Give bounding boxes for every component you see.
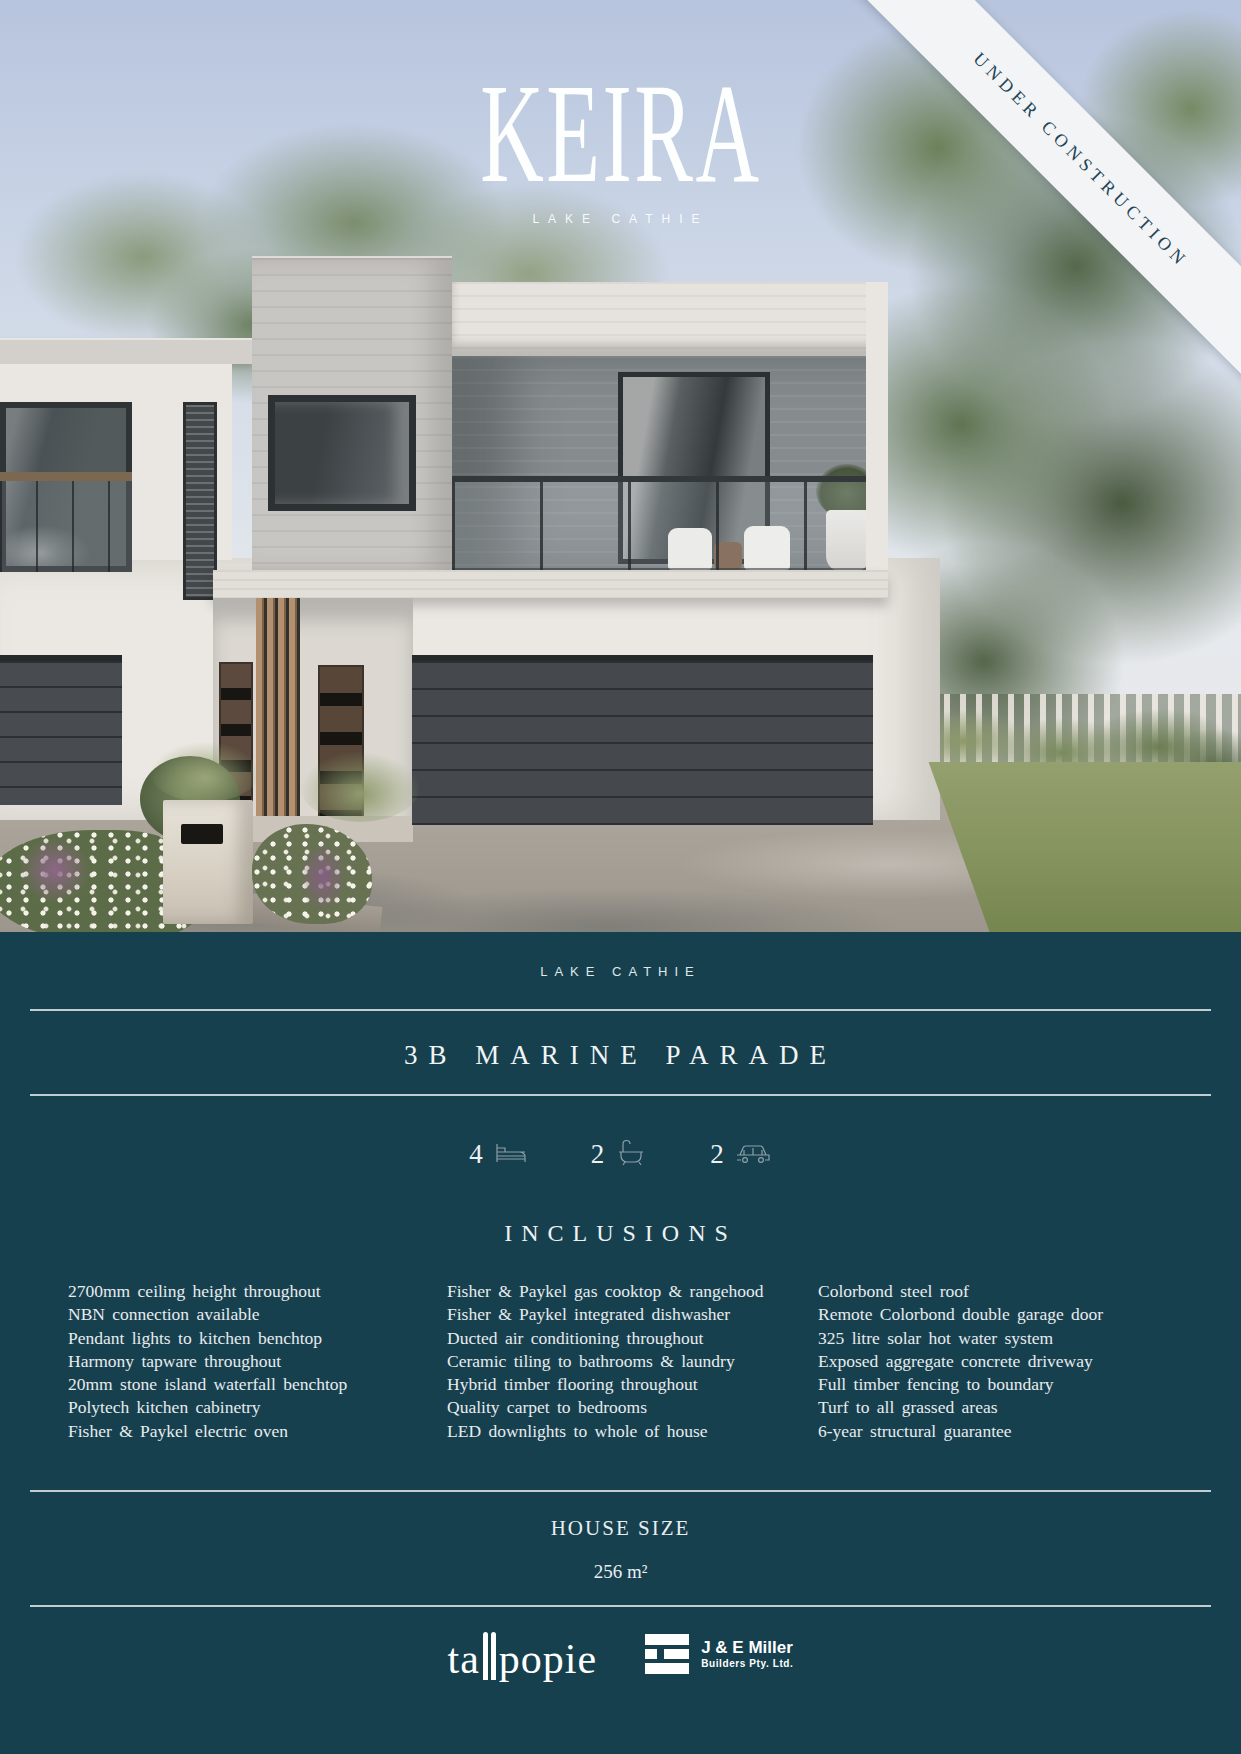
- inclusion-item: Hybrid timber flooring throughout: [447, 1373, 792, 1396]
- bath-icon: [614, 1138, 648, 1170]
- balcony-end-blade: [866, 282, 888, 572]
- property-title: KEIRA: [0, 62, 1241, 204]
- divider: [30, 1009, 1211, 1011]
- divider: [30, 1094, 1211, 1096]
- divider: [30, 1605, 1211, 1607]
- builder-name: J & E Miller: [701, 1639, 793, 1658]
- tallpopie-bar: [491, 1632, 496, 1680]
- inclusion-item: Remote Colorbond double garage door: [818, 1303, 1188, 1326]
- house-size-heading: HOUSE SIZE: [0, 1516, 1241, 1541]
- right-garage-door: [412, 655, 873, 825]
- inclusions-column-1: 2700mm ceiling height throughout NBN con…: [68, 1280, 398, 1443]
- house-size-value: 256 m²: [0, 1561, 1241, 1583]
- inclusion-item: 2700mm ceiling height throughout: [68, 1280, 398, 1303]
- address-heading: 3B MARINE PARADE: [0, 1040, 1241, 1071]
- inclusion-item: Ceramic tiling to bathrooms & laundry: [447, 1350, 792, 1373]
- inclusion-item: LED downlights to whole of house: [447, 1420, 792, 1443]
- left-garage-door: [0, 655, 122, 805]
- inclusion-item: Colorbond steel roof: [818, 1280, 1188, 1303]
- inclusion-item: Harmony tapware throughout: [68, 1350, 398, 1373]
- balcony-glass-railing: [452, 476, 888, 572]
- hero-render: UNDER CONSTRUCTION KEIRA LAKE CATHIE: [0, 0, 1241, 932]
- info-section: LAKE CATHIE 3B MARINE PARADE 4 2: [0, 932, 1241, 1754]
- inclusions-columns: 2700mm ceiling height throughout NBN con…: [0, 1280, 1241, 1450]
- left-balcony-railing: [0, 472, 132, 572]
- inclusion-item: Exposed aggregate concrete driveway: [818, 1350, 1188, 1373]
- first-floor-slab: [213, 570, 888, 598]
- letterbox-slot: [181, 824, 223, 844]
- divider: [30, 1490, 1211, 1492]
- inclusion-item: NBN connection available: [68, 1303, 398, 1326]
- inclusion-item: Polytech kitchen cabinetry: [68, 1396, 398, 1419]
- garage-count: 2: [710, 1139, 724, 1170]
- bedroom-count: 4: [469, 1139, 483, 1170]
- letterbox: [163, 800, 253, 924]
- tallpopie-bar: [483, 1632, 488, 1680]
- builder-logo: J & E Miller Builders Pty. Ltd.: [645, 1634, 793, 1674]
- center-window: [268, 395, 416, 511]
- property-stats: 4 2 2: [0, 1138, 1241, 1170]
- inclusions-column-2: Fisher & Paykel gas cooktop & rangehood …: [447, 1280, 792, 1443]
- inclusion-item: Fisher & Paykel electric oven: [68, 1420, 398, 1443]
- grass-tuft: [300, 752, 420, 822]
- tallpopie-logo-suffix: popie: [499, 1638, 597, 1680]
- stat-bedrooms: 4: [469, 1138, 529, 1170]
- timber-batten-screen: [256, 598, 300, 820]
- inclusion-item: 6-year structural guarantee: [818, 1420, 1188, 1443]
- inclusion-item: Ducted air conditioning throughout: [447, 1327, 792, 1350]
- inclusions-column-3: Colorbond steel roof Remote Colorbond do…: [818, 1280, 1188, 1443]
- inclusion-item: 325 litre solar hot water system: [818, 1327, 1188, 1350]
- footer-logos: ta popie J & E Miller Builders Pty. Ltd.: [0, 1632, 1241, 1680]
- louver-panel: [183, 402, 217, 600]
- right-unit-fascia: [452, 282, 888, 356]
- builder-logo-icon: [645, 1634, 689, 1674]
- builder-subtitle: Builders Pty. Ltd.: [701, 1658, 793, 1669]
- builder-logo-text: J & E Miller Builders Pty. Ltd.: [701, 1639, 793, 1669]
- purple-flowers: [20, 838, 90, 902]
- stat-bathrooms: 2: [591, 1138, 649, 1170]
- inclusion-item: Pendant lights to kitchen benchtop: [68, 1327, 398, 1350]
- location-label: LAKE CATHIE: [0, 964, 1241, 979]
- inclusion-item: Turf to all grassed areas: [818, 1396, 1188, 1419]
- bathroom-count: 2: [591, 1139, 605, 1170]
- grass-tuft: [150, 742, 260, 802]
- car-icon: [734, 1138, 772, 1170]
- inclusion-item: Quality carpet to bedrooms: [447, 1396, 792, 1419]
- inclusions-heading: INCLUSIONS: [0, 1220, 1241, 1247]
- inclusion-item: Fisher & Paykel integrated dishwasher: [447, 1303, 792, 1326]
- flyer-page: UNDER CONSTRUCTION KEIRA LAKE CATHIE LAK…: [0, 0, 1241, 1754]
- tallpopie-logo: ta popie: [448, 1632, 598, 1680]
- bed-icon: [493, 1138, 529, 1170]
- stat-garages: 2: [710, 1138, 772, 1170]
- purple-flowers: [300, 842, 346, 912]
- inclusion-item: Full timber fencing to boundary: [818, 1373, 1188, 1396]
- left-unit-roof: [0, 338, 252, 364]
- inclusion-item: Fisher & Paykel gas cooktop & rangehood: [447, 1280, 792, 1303]
- inclusion-item: 20mm stone island waterfall benchtop: [68, 1373, 398, 1396]
- property-subtitle: LAKE CATHIE: [0, 212, 1241, 226]
- tallpopie-logo-prefix: ta: [448, 1638, 480, 1680]
